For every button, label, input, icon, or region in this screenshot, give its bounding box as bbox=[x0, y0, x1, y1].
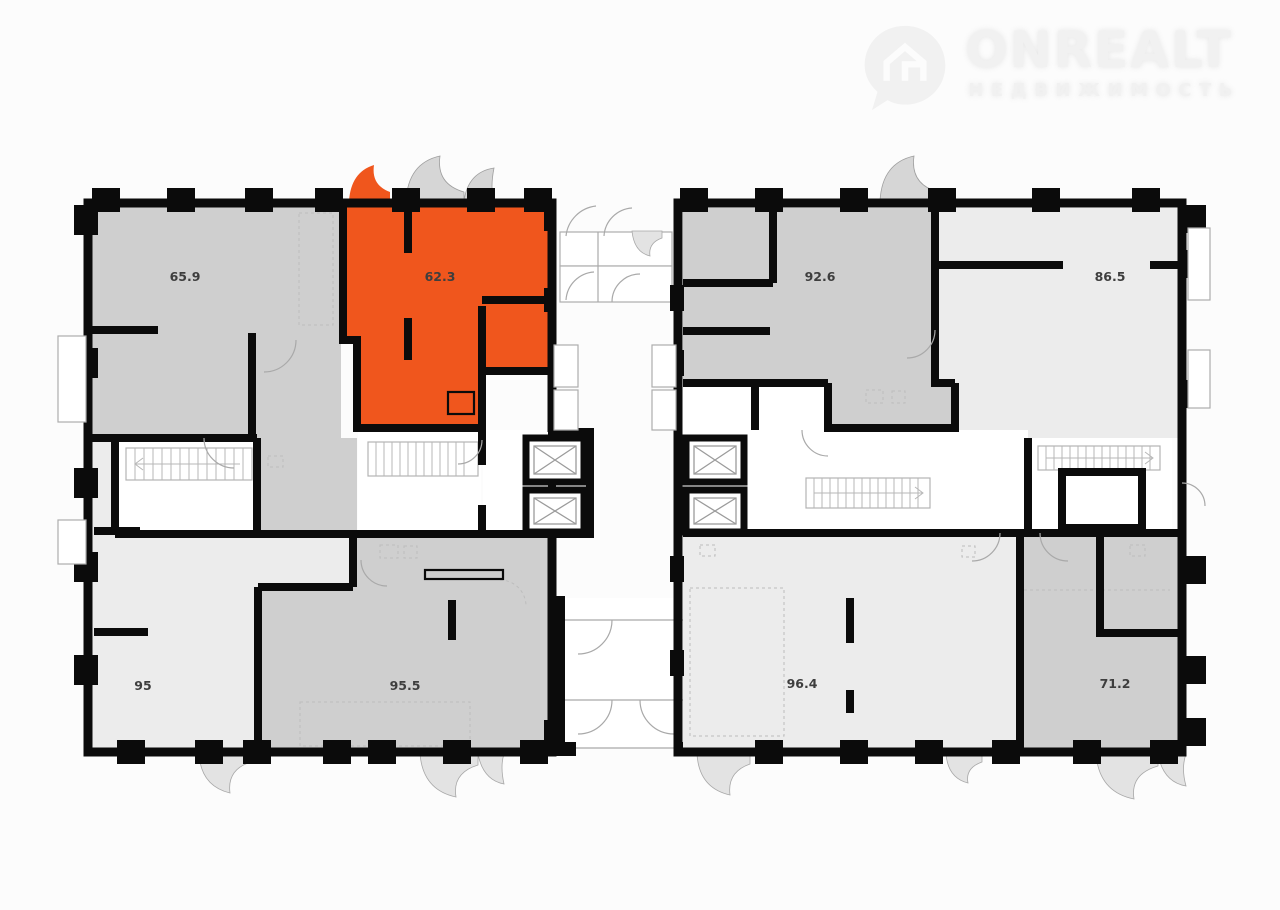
balcony-outline bbox=[58, 520, 86, 564]
staircase-icon bbox=[1038, 446, 1160, 470]
apartment-92-6-bath[interactable] bbox=[828, 383, 955, 428]
connecting-gallery-top bbox=[560, 206, 672, 302]
apartment-area-label: 62.3 bbox=[425, 269, 456, 284]
balcony-door-swing bbox=[946, 754, 982, 783]
apartment-area-label: 71.2 bbox=[1100, 676, 1131, 691]
brand-tagline: НЕДВИЖИМОСТЬ bbox=[968, 80, 1240, 101]
balcony-door-swing bbox=[349, 165, 390, 201]
balcony-outline bbox=[652, 345, 676, 387]
floor-plan: 65.9 62.3 95 95.5 bbox=[0, 0, 1280, 910]
apartment-65-9-corridor[interactable] bbox=[257, 438, 357, 534]
brand-logo: ONREALT НЕДВИЖИМОСТЬ bbox=[859, 24, 1240, 112]
apartment-65-9[interactable] bbox=[92, 207, 341, 438]
apartment-area-label: 86.5 bbox=[1095, 269, 1126, 284]
balcony-outline bbox=[554, 390, 578, 430]
left-building-section: 65.9 62.3 95 95.5 bbox=[58, 156, 590, 797]
staircase-icon bbox=[368, 442, 478, 476]
staircase-icon bbox=[806, 478, 930, 508]
balcony-outline bbox=[554, 345, 578, 387]
brand-text: ONREALT НЕДВИЖИМОСТЬ bbox=[965, 24, 1240, 101]
elevator-shaft-icon bbox=[686, 490, 744, 532]
elevator-shaft-icon bbox=[686, 438, 744, 482]
balcony-outline bbox=[1188, 228, 1210, 300]
house-pin-icon bbox=[859, 24, 951, 112]
apartment-area-label: 92.6 bbox=[805, 269, 836, 284]
right-building-section: 92.6 86.5 96.4 71.2 bbox=[652, 156, 1210, 799]
balcony-outline bbox=[58, 336, 86, 422]
apartment-area-label: 95 bbox=[134, 678, 151, 693]
apartment-area-label: 96.4 bbox=[787, 676, 818, 691]
balcony-outline bbox=[652, 390, 676, 430]
balcony-door-swing bbox=[697, 754, 750, 795]
shaft-room bbox=[1062, 472, 1142, 528]
apartment-area-label: 95.5 bbox=[390, 678, 421, 693]
elevator-shaft-icon bbox=[526, 490, 584, 532]
elevator-shaft-icon bbox=[526, 438, 584, 482]
staircase-icon bbox=[126, 448, 252, 480]
brand-name: ONREALT bbox=[965, 24, 1232, 77]
balcony-outline bbox=[1188, 350, 1210, 408]
apartment-92-6[interactable] bbox=[683, 208, 935, 383]
floor-plan-page: 65.9 62.3 95 95.5 bbox=[0, 0, 1280, 910]
apartment-area-label: 65.9 bbox=[170, 269, 201, 284]
